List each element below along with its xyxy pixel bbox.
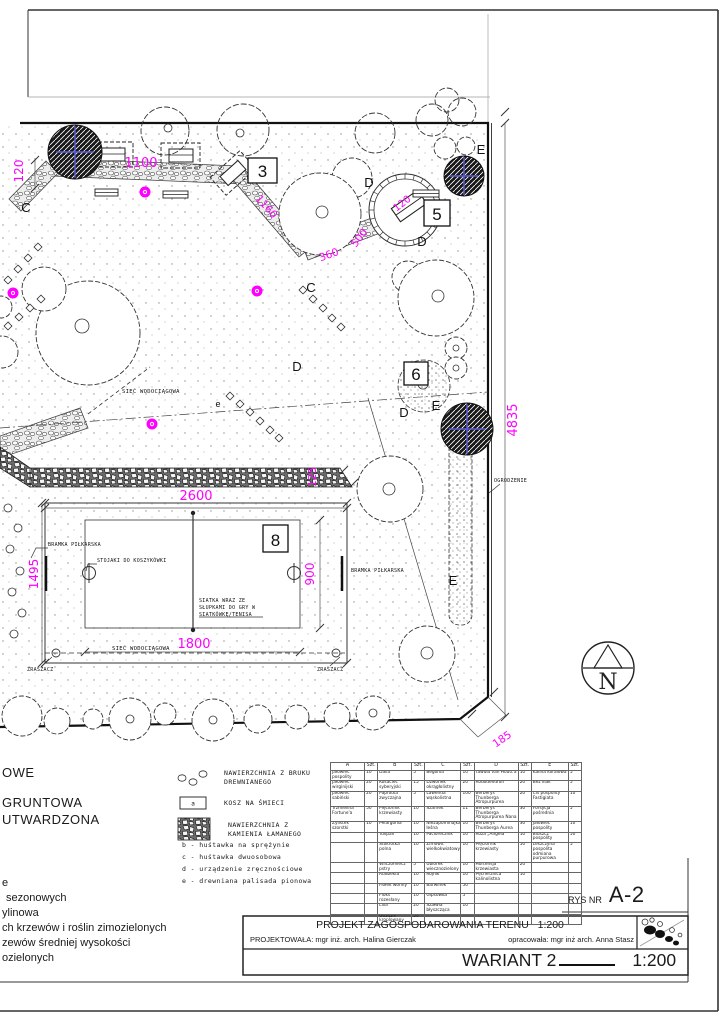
plant-table-cell: 5 [568, 781, 581, 791]
plant-table-cell: Pęcherznica kalinolistna [474, 873, 518, 883]
legend-cut-line: ozielonych [2, 952, 54, 964]
plant-table-cell: 10 [412, 883, 425, 893]
plant-table-cell [531, 904, 568, 914]
legend-stone-label: KAMIENIA ŁAMANEGO [228, 830, 301, 838]
feature-3: 3 [258, 162, 267, 181]
plant-table-cell [331, 904, 365, 914]
shrub-strip [449, 432, 472, 625]
plant-table-cell: Fiołek wonny [378, 883, 412, 893]
plant-table-cell [531, 873, 568, 883]
plant-table-cell: 30 [518, 822, 531, 832]
feature-6: 6 [411, 365, 420, 384]
label-siec: SIEĆ WODOCIĄGOWA [112, 645, 170, 652]
plant-table-cell: Kosaciec syberyjski [378, 781, 412, 791]
legend-trash-label: KOSZ NA ŚMIECI [224, 799, 284, 807]
plant-table-cell: 10 [412, 832, 425, 842]
plant-table-cell: 50 [461, 883, 474, 893]
plant-table-cell: 10 [412, 807, 425, 822]
table-row: Fiołek wonny10Barwinek50 [331, 883, 582, 893]
label-zraszacz: ZRASZACZ [27, 667, 53, 673]
plant-table-cell: 50 [365, 807, 378, 822]
plant-table-cell: Forsycja pośrednia [531, 807, 568, 822]
plant-table-cell [531, 883, 568, 893]
legend-cut-line: e [2, 877, 8, 889]
plant-table-cell: 10 [518, 832, 531, 842]
plant-table-cell: 50 [568, 832, 581, 842]
letter-d: D [364, 175, 373, 190]
plant-table-cell: Dzwonek okrągłolistny [425, 781, 461, 791]
legend-cut-line: ch krzewów i roślin zimozielonych [2, 922, 166, 934]
plant-table-cell [331, 893, 365, 903]
plant-table-cell [474, 883, 518, 893]
project-credits: PROJEKTOWAŁA: mgr inż. arch. Halina Gier… [250, 935, 634, 944]
dim-1100: 1100 [124, 156, 157, 171]
plant-table-cell: 20 [518, 781, 531, 791]
plant-table-cell: Róża „Angela” [474, 832, 518, 842]
dim-4835: 4835 [506, 403, 521, 436]
label-siatka1: SIATKA WRAZ ZE [199, 598, 245, 604]
plant-table-cell: 10 [461, 771, 474, 781]
plant-table-cell: Jałowiec pospolity [331, 771, 365, 781]
plant-table-cell: 5 [568, 771, 581, 781]
project-scale: 1:200 [538, 919, 564, 931]
plant-table-cell: 20 [365, 791, 378, 806]
plant-table-cell: Pięciornik krzewiasty [474, 843, 518, 863]
letter-e: E [449, 573, 458, 588]
legend-item-d: d - urządzenie zręcznościowe [182, 865, 303, 873]
plant-table-cell: Wilczomlecz pstry [378, 862, 412, 872]
plant-table-cell: 5 [461, 893, 474, 903]
dim-900: 900 [303, 563, 317, 586]
plant-table-cell: Paprotka zwyczajna [378, 791, 412, 806]
plant-table-cell: Jałowiec sabiński [331, 791, 365, 806]
trash-bin-icon: a [180, 797, 206, 809]
plant-table-cell [365, 843, 378, 863]
table-row: Lilia20Szałwia błyszcząca10 [331, 904, 582, 914]
plant-table-cell: 5 [568, 843, 581, 863]
label-siec: SIEĆ WODOCIĄGOWA [122, 388, 180, 395]
plant-table-cell: 20 [518, 791, 531, 806]
table-row: Jałowiec wirginijski20Kosaciec syberyjsk… [331, 781, 582, 791]
svg-text:a: a [191, 801, 195, 808]
plant-table-cell: Stokrotka polna [378, 843, 412, 863]
plant-table-cell [365, 873, 378, 883]
legend-item-c: c - huśtawka dwuosobowa [182, 853, 281, 861]
plant-table-cell: 20 [412, 904, 425, 914]
plant-table-cell: Cis pospolity Fastigiata [531, 791, 568, 806]
plant-table-header: C [425, 763, 461, 771]
plant-table-cell [518, 883, 531, 893]
plant-table-cell: Niezapominajka leśna [425, 822, 461, 832]
plant-table-cell [331, 832, 365, 842]
plant-table-cell: 10 [461, 904, 474, 914]
letter-c: C [21, 200, 30, 215]
plant-table-cell: 10 [412, 873, 425, 883]
plant-table-cell: Pelargonia [378, 822, 412, 832]
letter-e-small: e [215, 399, 220, 409]
ogrodzenie-leader [489, 484, 500, 493]
legend-wood-label: NAWIERZCHNIA Z BRUKU [224, 769, 310, 777]
plant-table-cell: Gipsówka [425, 893, 461, 903]
table-row: Tulipan10Paciorecznik10Róża „Angela”10Bl… [331, 832, 582, 842]
rys-nr-value: A-2 [609, 882, 645, 908]
plant-table-cell: Lawenda wąskolistna [425, 791, 461, 806]
dim-120: 120 [12, 160, 26, 183]
plant-table-cell: Szałwia błyszcząca [425, 904, 461, 914]
legend-cut-label: OWE [2, 765, 35, 780]
letter-d: D [417, 234, 426, 249]
legend-cut-label: GRUNTOWA [2, 795, 83, 810]
designed-by: PROJEKTOWAŁA: mgr inż. arch. Halina Gier… [250, 935, 416, 944]
drawing-number: RYS NR A-2 [568, 882, 645, 908]
plant-table-cell [531, 862, 568, 872]
legend-wood-label: DREWNIANEGO [224, 778, 271, 786]
letter-e: E [477, 142, 486, 157]
logo-stones [640, 918, 684, 946]
variant-line: WARIANT 2 1:200 [462, 950, 676, 971]
plant-table-cell [331, 862, 365, 872]
letter-c: C [306, 280, 315, 295]
plant-table-cell: Szafirek [425, 807, 461, 822]
plant-table-cell [365, 883, 378, 893]
plant-table-cell: 5 [568, 807, 581, 822]
plant-table-cell: 20 [461, 781, 474, 791]
feature-5: 5 [432, 205, 441, 224]
plant-table-cell: Trzmielina Fortune'a [331, 807, 365, 822]
label-zraszacz: ZRASZACZ [317, 667, 343, 673]
plant-table-cell: 10 [412, 893, 425, 903]
plant-table-cell: 10 [461, 873, 474, 883]
plant-table-header: Szt. [568, 763, 581, 771]
plant-table-cell: Berberys Thunberga Atropurpurea Nana [474, 807, 518, 822]
north-arrow: N [582, 642, 634, 695]
label-stojaki: STOJAKI DO KOSZYKÓWKI [97, 557, 167, 564]
plant-table-cell: 10 [365, 822, 378, 832]
plant-table-cell: 15 [412, 781, 425, 791]
plant-table-cell: Pięciornik krzewiasty [378, 807, 412, 822]
plant-table-cell [474, 904, 518, 914]
dim-125: 125 [307, 467, 319, 487]
plant-table-cell: 10 [568, 822, 581, 832]
plant-table-cell: 10 [365, 771, 378, 781]
site-plan-sheet: { "colors": { "dimension_magenta": "#ff0… [0, 0, 724, 1024]
legend-cut-line: zewów średniej wysokości [2, 937, 130, 949]
legend-stone-label: NAWIERZCHNIA Z [228, 821, 288, 829]
plant-table-cell: 10 [461, 822, 474, 832]
plant-table-cell: 20 [518, 862, 531, 872]
plant-table-cell: Dalia [378, 771, 412, 781]
plant-table-header: Szt. [365, 763, 378, 771]
table-row: Rudbekia10Rojnik10Pęcherznica kalinolist… [331, 873, 582, 883]
plant-table-cell: Hortensja krzewiasta [474, 862, 518, 872]
plant-table-cell: Kalina koralowa [531, 771, 568, 781]
plant-table-cell: Berberys Thunberga Atropurpurea [474, 791, 518, 806]
plant-table-header: D [474, 763, 518, 771]
label-siatka2: SŁUPKAMI DO GRY W [199, 605, 256, 611]
plant-table-cell: 11 [461, 807, 474, 822]
plant-table-cell: 10 [518, 873, 531, 883]
legend-item-b: b - huśtawka na sprężynie [182, 841, 290, 849]
crushed-stone-icon [178, 818, 210, 840]
variant-label: WARIANT 2 [462, 950, 556, 971]
variant-scale: 1:200 [632, 950, 676, 971]
plant-table-cell: 100 [461, 791, 474, 806]
plant-table-header: B [378, 763, 412, 771]
table-row: Floks rozesłany10Gipsówka5 [331, 893, 582, 903]
plant-table-cell: Barwinek [425, 883, 461, 893]
plant-table-cell: Berberys Thunberga Aurea [474, 822, 518, 832]
plant-table-cell [365, 904, 378, 914]
legend-item-e: e - drewniana palisada pionowa [182, 877, 311, 885]
construction-lines [28, 14, 490, 123]
table-row: Jałowiec pospolity10Dalia5Begonia10Tawuł… [331, 771, 582, 781]
plant-table-cell: Floks rozesłany [378, 893, 412, 903]
plant-table-cell [568, 862, 581, 872]
wood-paving-icon [178, 771, 207, 785]
plant-table-cell: Bluszcz pospolity [531, 832, 568, 842]
plant-table-cell: Bez lilak [531, 781, 568, 791]
table-row: Stokrotka polna10Zimowit wielkokwiatowy1… [331, 843, 582, 863]
plant-table-cell: Rojnik [425, 873, 461, 883]
plant-table-cell: 10 [461, 862, 474, 872]
plant-table-cell [331, 883, 365, 893]
plant-table-cell: Tawuła van Houtt'a [474, 771, 518, 781]
project-title: PROJEKT ZAGOSPODAROWANIA TERENU [316, 919, 529, 931]
plant-table-cell: 5 [412, 791, 425, 806]
plant-table-cell: 5 [412, 862, 425, 872]
letter-e: E [432, 398, 441, 413]
letter-d: D [399, 405, 408, 420]
plant-table-header: Szt. [461, 763, 474, 771]
plant-table-cell: 10 [461, 832, 474, 842]
north-letter: N [598, 670, 617, 695]
dim-2600: 2600 [179, 489, 212, 504]
plant-table-cell: Jałowiec wirginijski [331, 781, 365, 791]
plant-table-cell: Żylistek szorstki [331, 822, 365, 832]
plant-table-header: A [331, 763, 365, 771]
plant-table-cell: Lilia [378, 904, 412, 914]
letter-d: D [292, 359, 301, 374]
plant-table-cell [518, 904, 531, 914]
table-row: Jałowiec sabiński20Paprotka zwyczajna5La… [331, 791, 582, 806]
plant-table-header: Szt. [518, 763, 531, 771]
project-title-line: PROJEKT ZAGOSPODAROWANIA TERENU 1:200 [243, 919, 637, 931]
plant-table-cell [365, 862, 378, 872]
dim-1495: 1495 [27, 559, 41, 590]
plant-table-cell: Rododendron [474, 781, 518, 791]
plant-table-cell: Paciorecznik [425, 832, 461, 842]
plant-table-cell [474, 893, 518, 903]
plant-table-header: Szt. [412, 763, 425, 771]
plant-table-cell: Leszczyna pospolita odmiana purpurowa [531, 843, 568, 863]
plant-table-cell: Begonia [425, 771, 461, 781]
table-row: Żylistek szorstki10Pelargonia10Niezapomi… [331, 822, 582, 832]
feature-8: 8 [271, 531, 280, 550]
plant-table-cell [518, 893, 531, 903]
plant-table-cell: Tulipan [378, 832, 412, 842]
dim-1800: 1800 [177, 637, 210, 652]
plant-table: ASzt.BSzt.CSzt.DSzt.ESzt.Jałowiec pospol… [330, 762, 582, 925]
rys-nr-label: RYS NR [568, 895, 602, 908]
plant-table-cell: 10 [461, 843, 474, 863]
plant-table-cell: Ubiorek wiecznozielony [425, 862, 461, 872]
plant-table-cell: Rudbekia [378, 873, 412, 883]
plant-table-cell: 10 [518, 771, 531, 781]
legend-cut-line: sezonowych [6, 892, 67, 904]
table-row: Wilczomlecz pstry5Ubiorek wiecznozielony… [331, 862, 582, 872]
label-siatka3: SIATKÓWKĘ/TENISA [199, 611, 252, 618]
plant-table-cell [365, 832, 378, 842]
table-row: Trzmielina Fortune'a50Pięciornik krzewia… [331, 807, 582, 822]
legend-icons: a [178, 771, 210, 840]
plant-table-cell [531, 893, 568, 903]
plant-table-cell: 50 [518, 843, 531, 863]
legend-cut-line: ylinowa [2, 907, 39, 919]
plant-table-cell: 10 [568, 791, 581, 806]
label-bramka: BRAMKA PIŁKARSKA [48, 542, 101, 548]
label-bramka: BRAMKA PIŁKARSKA [351, 568, 404, 574]
plant-table-cell [365, 893, 378, 903]
plant-table-cell [331, 873, 365, 883]
label-ogrodzenie: OGRODZENIE [494, 478, 527, 484]
prepared-by: opracowała: mgr inż arch. Anna Stasz [508, 935, 634, 944]
legend-cut-label: UTWARDZONA [2, 812, 100, 827]
dim-185: 185 [491, 729, 514, 750]
plant-table-cell: 10 [412, 822, 425, 832]
variant-underline [559, 950, 615, 966]
plant-table-cell: 30 [518, 807, 531, 822]
plant-table-cell [331, 843, 365, 863]
plant-table-cell: 5 [412, 771, 425, 781]
plant-table-cell: 10 [412, 843, 425, 863]
plant-table-cell: 20 [365, 781, 378, 791]
plant-table-cell: Jałowiec pospolity [531, 822, 568, 832]
plant-table-header: E [531, 763, 568, 771]
plant-table-cell: Zimowit wielkokwiatowy [425, 843, 461, 863]
